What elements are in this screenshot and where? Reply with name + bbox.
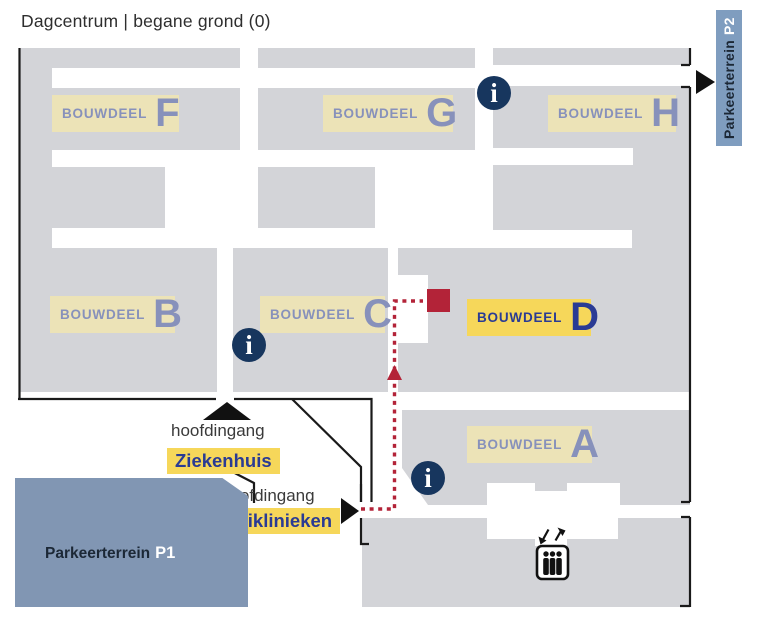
building-word: BOUWDEEL bbox=[477, 437, 562, 452]
building-label-c: BOUWDEEL C bbox=[260, 296, 385, 333]
building-word: BOUWDEEL bbox=[62, 106, 147, 121]
building-label-d: BOUWDEEL D bbox=[467, 299, 591, 336]
building-word: BOUWDEEL bbox=[60, 307, 145, 322]
parking-p1-text: Parkeerterrein bbox=[45, 545, 150, 562]
corridor-notch bbox=[396, 275, 428, 343]
parking-p1-code: P1 bbox=[155, 544, 175, 562]
building-letter: D bbox=[570, 304, 599, 330]
building-letter: A bbox=[570, 431, 599, 457]
building-block-row3-right bbox=[493, 165, 690, 230]
page-title: Dagcentrum | begane grond (0) bbox=[21, 11, 271, 32]
block-bottom-opening bbox=[487, 518, 618, 539]
building-label-a: BOUWDEEL A bbox=[467, 426, 592, 463]
p2-direction-arrow-icon bbox=[696, 70, 715, 94]
building-letter: F bbox=[155, 100, 179, 126]
building-letter: H bbox=[651, 100, 680, 126]
building-block-row3-left bbox=[19, 167, 165, 228]
building-label-b: BOUWDEEL B bbox=[50, 296, 175, 333]
parking-p1-label: ParkeerterreinP1 bbox=[45, 544, 175, 563]
info-icon-glyph: i bbox=[490, 80, 498, 107]
parking-p2-text: Parkeerterrein bbox=[721, 40, 737, 139]
info-icon-glyph: i bbox=[424, 465, 432, 492]
parking-p2-code: P2 bbox=[721, 17, 737, 35]
info-icon-glyph: i bbox=[245, 332, 253, 359]
building-block-strip-1 bbox=[52, 48, 240, 68]
hospital-floor-map: Dagcentrum | begane grond (0) bbox=[0, 0, 761, 625]
building-letter: G bbox=[426, 100, 457, 126]
hospital-entrance-name: Ziekenhuis bbox=[167, 448, 280, 474]
clinics-entrance-arrow-icon bbox=[341, 498, 359, 524]
building-block-row3-mid bbox=[258, 167, 375, 228]
building-block-right-edge-a bbox=[633, 148, 690, 165]
hospital-entrance-arrow-icon bbox=[203, 402, 251, 420]
block-bottom-opening-notch bbox=[535, 539, 567, 546]
parking-area-p2: Parkeerterrein P2 bbox=[716, 10, 742, 146]
building-label-h: BOUWDEEL H bbox=[548, 95, 676, 132]
hospital-entrance-prefix: hoofdingang bbox=[171, 421, 265, 441]
building-label-f: BOUWDEEL F bbox=[52, 95, 179, 132]
block-a-opening-notch bbox=[535, 483, 567, 491]
building-block-strip-3 bbox=[493, 48, 690, 65]
building-block-right-edge-b bbox=[632, 230, 690, 248]
building-word: BOUWDEEL bbox=[270, 307, 355, 322]
building-letter: B bbox=[153, 301, 182, 327]
info-icon: i bbox=[232, 328, 266, 362]
info-icon: i bbox=[411, 461, 445, 495]
building-letter: C bbox=[363, 301, 392, 327]
parking-area-p1: ParkeerterreinP1 bbox=[15, 478, 248, 607]
building-word: BOUWDEEL bbox=[477, 310, 562, 325]
building-word: BOUWDEEL bbox=[333, 106, 418, 121]
building-block-strip-2 bbox=[258, 48, 475, 68]
info-icon: i bbox=[477, 76, 511, 110]
building-word: BOUWDEEL bbox=[558, 106, 643, 121]
building-label-g: BOUWDEEL G bbox=[323, 95, 453, 132]
